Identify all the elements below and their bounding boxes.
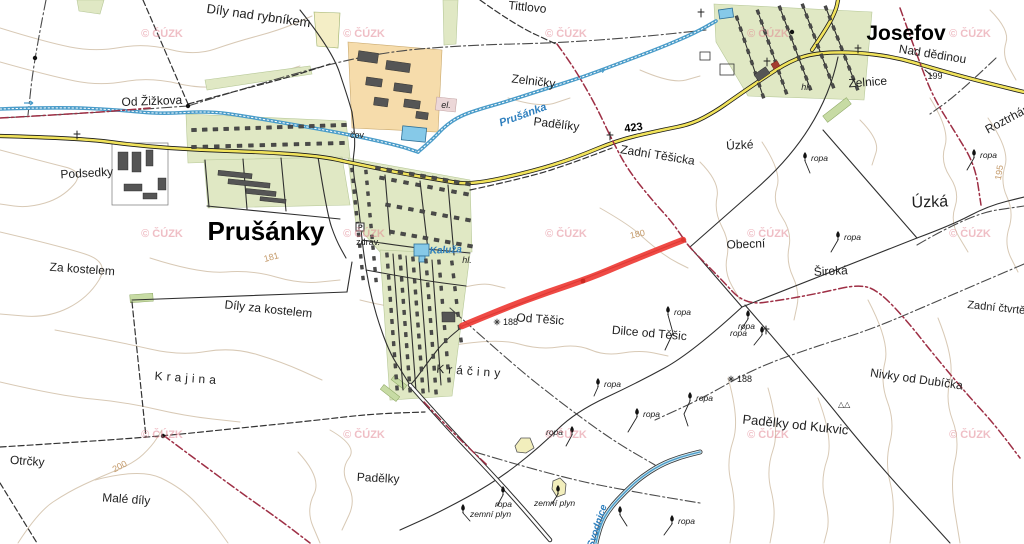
map-label: hl.: [801, 82, 811, 92]
building: [392, 341, 395, 346]
building: [266, 126, 271, 130]
building: [412, 268, 415, 273]
building-large: [374, 97, 389, 107]
building: [463, 192, 469, 196]
building: [385, 203, 391, 207]
building: [350, 168, 353, 172]
building: [411, 257, 414, 262]
building: [237, 144, 242, 148]
well-label: ropa: [643, 409, 660, 419]
cuzk-watermark: © ČÚZK: [545, 227, 587, 240]
building: [453, 286, 457, 291]
building-large: [118, 152, 128, 170]
map-label: Kaluža: [429, 244, 462, 257]
oil-well-icon: [973, 156, 975, 158]
topographic-map: roparoparoparoparoparoparoparoparoparopa…: [0, 0, 1024, 544]
gas-well-icon: [462, 511, 464, 513]
building: [432, 354, 435, 359]
building: [328, 141, 333, 145]
building: [390, 308, 393, 313]
cuzk-watermark: © ČÚZK: [949, 428, 991, 441]
building: [439, 187, 445, 191]
well-label: ropa: [730, 328, 747, 338]
building: [404, 332, 407, 337]
building: [351, 179, 354, 183]
building: [394, 363, 397, 368]
route-highlight-dot: [581, 279, 586, 284]
building: [430, 330, 433, 335]
well-label: ropa: [674, 307, 691, 317]
building: [443, 325, 446, 330]
oil-well-icon: [671, 522, 673, 524]
oil-well-icon: [619, 513, 621, 515]
vegetation-strip: [130, 293, 154, 303]
cuzk-watermark: © ČÚZK: [747, 227, 789, 240]
building: [445, 351, 448, 356]
building: [309, 124, 314, 128]
building-large: [143, 193, 157, 199]
building: [412, 234, 418, 238]
building: [400, 277, 403, 282]
building: [444, 338, 447, 343]
building: [401, 288, 404, 293]
building: [455, 299, 459, 304]
building: [416, 312, 419, 317]
cuzk-watermark: © ČÚZK: [141, 27, 183, 40]
well-label: ropa: [980, 150, 997, 160]
building: [423, 236, 429, 240]
oil-well-icon: [636, 415, 638, 417]
building: [294, 142, 299, 146]
building: [416, 323, 419, 328]
building-large: [124, 184, 142, 191]
cuzk-watermark: © ČÚZK: [545, 428, 587, 441]
gas-well-icon: [557, 492, 559, 494]
building: [341, 123, 346, 127]
building: [399, 266, 402, 271]
spot-height-value: 188: [737, 374, 752, 384]
pond: [401, 126, 426, 142]
building: [373, 267, 376, 271]
building: [414, 290, 417, 295]
building: [421, 378, 424, 383]
building: [428, 306, 431, 311]
oil-well-icon: [689, 399, 691, 401]
building: [354, 200, 357, 204]
map-label: 199: [927, 71, 942, 81]
building: [429, 318, 432, 323]
building: [213, 127, 218, 131]
oil-well-icon: [667, 313, 669, 315]
building: [419, 356, 422, 361]
building: [353, 189, 356, 193]
building: [408, 377, 411, 382]
building: [400, 232, 406, 236]
building-large: [442, 312, 455, 322]
building: [427, 294, 430, 299]
map-label: Úzká: [911, 191, 948, 211]
building-large: [146, 150, 153, 166]
building: [226, 144, 231, 148]
building: [271, 143, 276, 147]
building: [260, 143, 265, 147]
building: [359, 254, 362, 258]
building: [256, 126, 261, 130]
building: [451, 190, 457, 194]
building: [277, 125, 282, 129]
building: [465, 182, 471, 186]
well-label: ropa: [696, 393, 713, 403]
building: [415, 183, 421, 187]
building: [452, 273, 456, 278]
building: [234, 127, 239, 131]
building: [387, 275, 390, 280]
building: [367, 202, 370, 206]
building: [467, 244, 473, 248]
building: [454, 180, 460, 184]
building: [433, 378, 436, 383]
building: [459, 338, 463, 343]
cuzk-watermark: © ČÚZK: [747, 27, 789, 40]
building: [379, 176, 385, 180]
building: [440, 286, 443, 291]
well-label: ropa: [495, 499, 512, 509]
oil-well-icon: [502, 493, 504, 495]
building: [202, 128, 207, 132]
map-label: Od Žižkova: [121, 92, 182, 109]
building: [191, 145, 196, 149]
building: [441, 299, 444, 304]
orchard-area: [314, 12, 340, 48]
cuzk-watermark: © ČÚZK: [141, 428, 183, 441]
building-large: [132, 152, 141, 172]
building: [395, 375, 398, 380]
building: [288, 125, 293, 129]
building: [408, 388, 411, 393]
building-large: [158, 178, 166, 190]
building: [406, 354, 409, 359]
building: [331, 124, 336, 128]
building: [421, 389, 424, 394]
building: [424, 259, 427, 264]
oil-well-icon: [597, 385, 599, 387]
building: [386, 168, 392, 172]
cuzk-watermark: © ČÚZK: [545, 27, 587, 40]
building: [425, 271, 428, 276]
building: [389, 230, 395, 234]
building: [245, 126, 250, 130]
building: [450, 261, 454, 266]
building: [395, 386, 398, 391]
building: [390, 319, 393, 324]
building: [465, 218, 471, 222]
triangulation-icon: △△: [838, 400, 851, 409]
cuzk-watermark: © ČÚZK: [949, 227, 991, 240]
building: [391, 330, 394, 335]
map-label: hl.: [462, 255, 472, 265]
building: [385, 253, 388, 258]
building: [299, 125, 304, 129]
building: [402, 299, 405, 304]
building: [374, 278, 377, 282]
building: [317, 142, 322, 146]
building: [427, 185, 433, 189]
building: [403, 310, 406, 315]
building: [443, 178, 449, 182]
well-label: zemní plyn: [533, 498, 575, 508]
building: [320, 124, 325, 128]
well-label: ropa: [844, 232, 861, 242]
building: [420, 367, 423, 372]
map-label: Josefov: [866, 22, 946, 45]
junction-dot: [186, 104, 190, 108]
junction-dot: [33, 56, 37, 60]
building: [431, 342, 434, 347]
building: [389, 297, 392, 302]
building: [438, 273, 441, 278]
building: [372, 256, 375, 260]
building: [447, 378, 450, 383]
building: [388, 286, 391, 291]
building: [283, 143, 288, 147]
building: [364, 170, 367, 174]
building: [248, 144, 253, 148]
building: [431, 211, 437, 215]
pond: [718, 8, 733, 19]
cuzk-watermark: © ČÚZK: [747, 428, 789, 441]
building: [420, 209, 426, 213]
map-label: Široká: [813, 262, 848, 279]
building: [437, 260, 440, 265]
well-label: ropa: [811, 153, 828, 163]
well-label: ropa: [604, 379, 621, 389]
building: [409, 172, 415, 176]
building: [405, 343, 408, 348]
building: [393, 352, 396, 357]
building: [366, 191, 369, 195]
building: [361, 276, 364, 280]
building: [434, 238, 440, 242]
map-canvas[interactable]: roparoparoparoparoparoparoparoparoparopa…: [0, 0, 1024, 544]
map-label: Úzké: [726, 136, 754, 152]
building: [191, 128, 196, 132]
pond: [419, 256, 425, 262]
building-large: [416, 111, 429, 120]
building: [365, 181, 368, 185]
map-label: Prušánky: [207, 216, 325, 246]
oil-well-icon: [804, 159, 806, 161]
cuzk-watermark: © ČÚZK: [343, 27, 385, 40]
map-label: Zelnice: [848, 74, 888, 91]
building: [413, 279, 416, 284]
map-label: Padělky: [357, 470, 400, 486]
building: [403, 180, 409, 184]
building: [224, 127, 229, 131]
map-label: Podsedky: [60, 165, 113, 182]
map-label: čov: [350, 130, 365, 140]
building: [445, 240, 451, 244]
map-label: 423: [624, 121, 644, 135]
building: [442, 214, 448, 218]
cuzk-watermark: © ČÚZK: [343, 227, 385, 240]
building: [454, 216, 460, 220]
building: [426, 282, 429, 287]
building: [434, 390, 437, 395]
building: [403, 321, 406, 326]
building: [418, 345, 421, 350]
junction-dot: [790, 30, 794, 34]
cuzk-watermark: © ČÚZK: [141, 227, 183, 240]
building: [398, 170, 404, 174]
building: [420, 174, 426, 178]
pond: [414, 244, 429, 256]
map-label: el.: [441, 100, 451, 110]
cuzk-watermark: © ČÚZK: [343, 428, 385, 441]
building: [415, 301, 418, 306]
building: [417, 334, 420, 339]
building: [397, 205, 403, 209]
building: [214, 145, 219, 149]
building: [339, 141, 344, 145]
building: [398, 255, 401, 260]
building: [203, 145, 208, 149]
map-label: Otrčky: [9, 453, 45, 469]
cuzk-watermark: © ČÚZK: [949, 27, 991, 40]
building: [360, 265, 363, 269]
building: [408, 207, 414, 211]
well-label: zemní plyn: [469, 509, 511, 519]
building: [305, 142, 310, 146]
well-label: ropa: [678, 516, 695, 526]
oil-well-icon: [837, 238, 839, 240]
building: [407, 365, 410, 370]
oil-well-icon: [747, 317, 749, 319]
garden-area: [443, 0, 458, 45]
building: [355, 211, 358, 215]
building: [386, 264, 389, 269]
building: [456, 312, 460, 317]
building: [391, 178, 397, 182]
building: [375, 166, 381, 170]
oil-well-icon: [761, 333, 763, 335]
building: [431, 176, 437, 180]
building: [368, 213, 371, 217]
